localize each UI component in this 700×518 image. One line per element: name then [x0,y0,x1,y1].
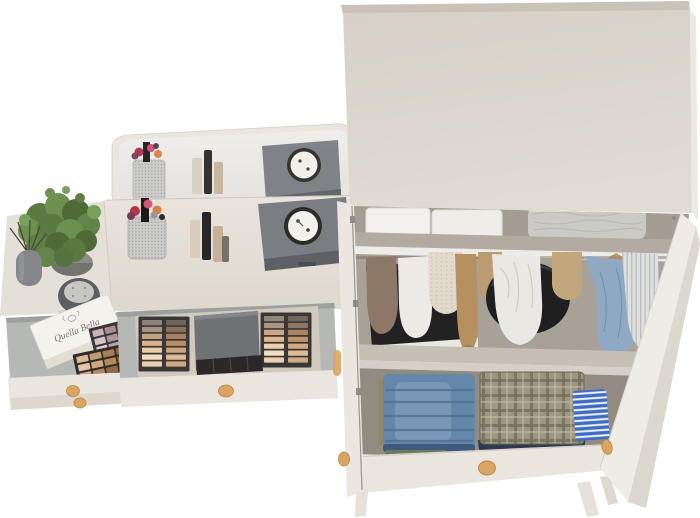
drawer-knob [67,386,80,397]
drawer-knob [479,461,496,475]
furniture-product-render: Quella Bella [0,0,700,518]
makeup-kit-left-palette [139,317,190,372]
drawer-knob [219,385,234,397]
vanity-center-drawer [117,303,337,380]
scene: Quella Bella [0,0,700,518]
case-handle [298,262,316,266]
folded-jeans [378,374,475,456]
cream-knit [398,256,432,338]
wardrobe-top-panel [343,10,692,213]
brown-garment [366,256,398,334]
makeup-kit-right-palette [261,313,312,368]
brush-cup [127,198,166,259]
storage-bin [366,208,430,236]
hinge [356,388,361,395]
hinge [350,216,355,223]
reflected-brush-cup [132,142,166,200]
door-knob [339,452,350,466]
vanity: Quella Bella [0,124,353,410]
alarm-clock [284,207,322,245]
hinge [353,300,358,307]
side-knob-profile [333,350,341,376]
striped-blue-fabric [572,389,609,441]
drawer-knob [74,398,86,408]
gray-case-with-clock [258,197,350,271]
wardrobe [337,1,700,517]
beige-garment [552,252,582,300]
vanity-mirror [112,124,353,208]
hinge [672,216,676,220]
wardrobe-leg [577,481,599,517]
